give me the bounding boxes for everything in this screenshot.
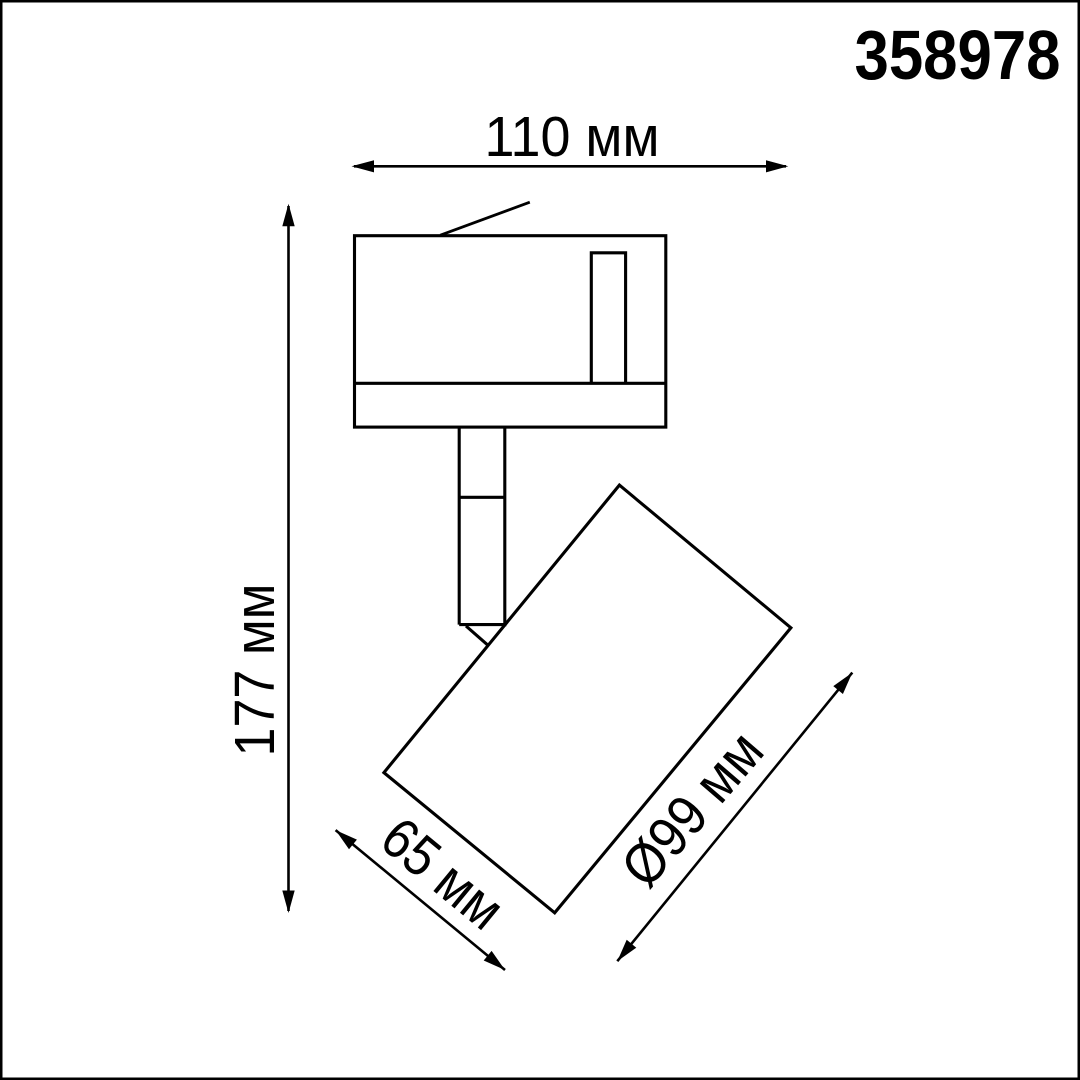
svg-text:110 мм: 110 мм [485, 105, 660, 169]
svg-text:177 мм: 177 мм [223, 584, 287, 757]
svg-text:358978: 358978 [855, 16, 1061, 94]
